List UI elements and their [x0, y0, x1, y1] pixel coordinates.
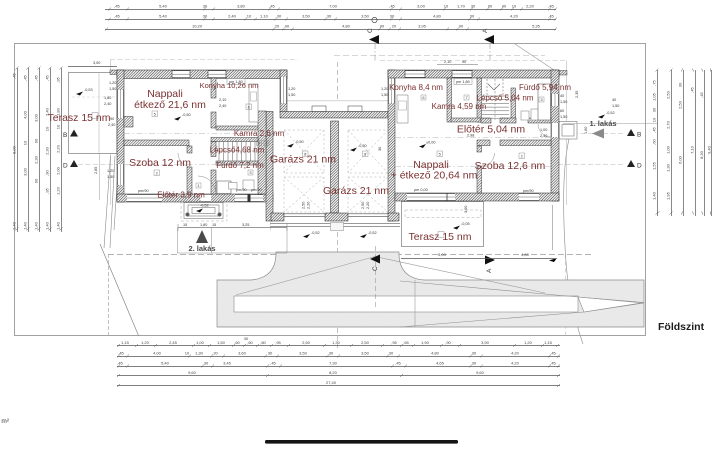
- svg-text:,60: ,60: [234, 340, 240, 345]
- svg-text:10,20: 10,20: [192, 24, 203, 29]
- svg-text:10: 10: [652, 117, 657, 122]
- svg-text:4,20: 4,20: [511, 361, 520, 366]
- svg-text:1,15: 1,15: [544, 340, 553, 345]
- svg-text:27,40: 27,40: [326, 380, 337, 385]
- svg-text:étkező 21,6 nm: étkező 21,6 nm: [134, 99, 206, 111]
- svg-text:2,20: 2,20: [526, 4, 535, 9]
- svg-text:4,00: 4,00: [23, 110, 28, 119]
- svg-text:30: 30: [471, 4, 476, 9]
- svg-text:4,65: 4,65: [436, 361, 445, 366]
- svg-text:,95: ,95: [45, 187, 50, 193]
- svg-text:-0,50: -0,50: [295, 140, 304, 144]
- svg-text:15: 15: [212, 223, 216, 227]
- svg-text:90: 90: [462, 60, 466, 64]
- svg-text:1. lakás: 1. lakás: [589, 119, 616, 128]
- svg-text:,45: ,45: [548, 4, 554, 9]
- svg-text:1,60: 1,60: [584, 127, 588, 134]
- svg-text:20: 20: [275, 24, 280, 29]
- svg-text:60: 60: [560, 109, 564, 113]
- svg-text:1,30: 1,30: [195, 351, 204, 356]
- svg-text:90: 90: [285, 24, 290, 29]
- svg-text:pm 1,80: pm 1,80: [229, 80, 243, 84]
- svg-text:30: 30: [389, 351, 394, 356]
- svg-text:2,40: 2,40: [228, 14, 237, 19]
- svg-text:2,50: 2,50: [678, 100, 683, 109]
- svg-text:,45: ,45: [12, 72, 17, 78]
- svg-text:6,00: 6,00: [678, 155, 683, 164]
- svg-text:+ étkező 20,64 nm: + étkező 20,64 nm: [391, 170, 478, 182]
- svg-text:90: 90: [459, 24, 464, 29]
- svg-text:40: 40: [612, 98, 616, 102]
- svg-text:,60: ,60: [247, 340, 253, 345]
- svg-text:,95: ,95: [56, 76, 61, 82]
- svg-text:,45: ,45: [118, 351, 124, 356]
- svg-text:3,50: 3,50: [302, 14, 311, 19]
- svg-text:C: C: [367, 28, 374, 33]
- svg-text:2,40: 2,40: [45, 107, 50, 116]
- svg-text:4 m²: 4 m²: [0, 418, 10, 425]
- svg-text:1,50: 1,50: [107, 175, 114, 179]
- svg-text:1,30: 1,30: [332, 340, 341, 345]
- svg-text:-0,53: -0,53: [84, 88, 93, 92]
- svg-text:C: C: [372, 266, 379, 271]
- svg-text:30: 30: [329, 351, 334, 356]
- svg-text:2,10: 2,10: [219, 98, 226, 102]
- svg-text:2,30: 2,30: [45, 146, 50, 155]
- svg-text:30: 30: [268, 351, 273, 356]
- svg-text:Fürdő 7,2 nm: Fürdő 7,2 nm: [216, 161, 264, 170]
- svg-text:pm/90: pm/90: [138, 189, 149, 193]
- svg-text:pm/90: pm/90: [236, 188, 247, 192]
- svg-text:10: 10: [185, 351, 190, 356]
- svg-text:2,20: 2,20: [56, 144, 61, 153]
- svg-text:±0,00: ±0,00: [426, 141, 435, 145]
- svg-text:,45: ,45: [652, 126, 657, 132]
- svg-text:,80: ,80: [260, 340, 266, 345]
- svg-text:5,40: 5,40: [159, 14, 168, 19]
- svg-text:,95: ,95: [391, 340, 397, 345]
- svg-text:4,20: 4,20: [511, 351, 520, 356]
- svg-text:5,40: 5,40: [159, 4, 168, 9]
- svg-text:2,00: 2,00: [56, 166, 61, 175]
- svg-text:4,20: 4,20: [510, 14, 519, 19]
- svg-text:3,45: 3,45: [223, 361, 232, 366]
- svg-text:Fürdő 5,94 nm: Fürdő 5,94 nm: [519, 83, 571, 92]
- svg-text:Szoba 12,6 nm: Szoba 12,6 nm: [475, 160, 546, 172]
- svg-text:Lépcső4,68 nm: Lépcső4,68 nm: [210, 146, 265, 155]
- svg-text:30: 30: [204, 361, 209, 366]
- svg-text:1,20: 1,20: [524, 340, 533, 345]
- svg-text:Terasz 15 nm: Terasz 15 nm: [408, 231, 471, 243]
- svg-text:1,50: 1,50: [109, 87, 116, 91]
- svg-text:,45: ,45: [395, 361, 401, 366]
- svg-text:2,30: 2,30: [34, 155, 39, 164]
- svg-text:30: 30: [652, 107, 657, 112]
- svg-text:Konyha 8,4 nm: Konyha 8,4 nm: [389, 83, 443, 92]
- svg-text:4,80: 4,80: [521, 252, 530, 257]
- svg-text:1,10: 1,10: [260, 14, 269, 19]
- svg-text:1,20: 1,20: [141, 340, 150, 345]
- svg-text:,45: ,45: [389, 4, 395, 9]
- svg-text:1,95: 1,95: [666, 191, 671, 200]
- svg-text:1,40: 1,40: [56, 221, 61, 230]
- svg-text:30: 30: [390, 14, 395, 19]
- svg-text:1,40: 1,40: [23, 221, 28, 230]
- svg-text:8,20: 8,20: [329, 370, 338, 375]
- svg-text:,95: ,95: [275, 340, 281, 345]
- svg-text:3,95: 3,95: [418, 24, 427, 29]
- svg-text:-0,52: -0,52: [368, 231, 377, 235]
- svg-text:Garázs 21 nm: Garázs 21 nm: [323, 185, 389, 197]
- svg-text:,75: ,75: [652, 79, 657, 85]
- svg-text:,90: ,90: [445, 340, 451, 345]
- svg-text:1,90: 1,90: [421, 340, 430, 345]
- svg-text:10: 10: [45, 126, 50, 131]
- svg-text:2,50: 2,50: [302, 340, 311, 345]
- svg-text:,45: ,45: [699, 91, 704, 97]
- svg-text:1,15: 1,15: [121, 340, 130, 345]
- svg-text:1,55: 1,55: [652, 161, 657, 170]
- svg-text:1,30: 1,30: [666, 163, 671, 172]
- svg-text:30: 30: [203, 4, 208, 9]
- svg-text:,45: ,45: [45, 74, 50, 80]
- svg-text:7,30: 7,30: [329, 361, 338, 366]
- svg-text:-0,50: -0,50: [182, 113, 191, 117]
- svg-text:1,70: 1,70: [457, 4, 466, 9]
- svg-text:4,80: 4,80: [431, 351, 440, 356]
- svg-text:2,85: 2,85: [94, 167, 98, 174]
- svg-text:Földszint: Földszint: [658, 321, 705, 333]
- svg-text:4,80: 4,80: [342, 24, 351, 29]
- svg-text:30: 30: [472, 361, 477, 366]
- svg-text:pm/90: pm/90: [523, 189, 534, 193]
- svg-text:,45: ,45: [23, 74, 28, 80]
- svg-text:,45: ,45: [269, 4, 275, 9]
- svg-text:,45: ,45: [548, 14, 554, 19]
- svg-text:2,40: 2,40: [108, 123, 115, 127]
- svg-text:pm/90: pm/90: [251, 188, 262, 192]
- svg-text:2,40: 2,40: [219, 104, 226, 108]
- svg-text:1,20: 1,20: [56, 186, 61, 195]
- svg-text:9,40: 9,40: [707, 145, 712, 154]
- svg-text:3,00: 3,00: [23, 167, 28, 176]
- svg-text:1,50: 1,50: [381, 93, 388, 97]
- svg-text:1,20: 1,20: [288, 87, 295, 91]
- svg-text:,90: ,90: [45, 169, 50, 175]
- svg-text:30: 30: [678, 82, 683, 87]
- svg-text:A: A: [482, 28, 489, 33]
- svg-text:1,00: 1,00: [540, 128, 547, 132]
- svg-text:30: 30: [277, 14, 282, 19]
- svg-text:20: 20: [392, 24, 397, 29]
- svg-text:3,60: 3,60: [238, 351, 247, 356]
- svg-text:4,80: 4,80: [433, 14, 442, 19]
- svg-text:,45: ,45: [114, 14, 120, 19]
- svg-text:30: 30: [472, 351, 477, 356]
- svg-text:A: A: [486, 268, 493, 273]
- svg-text:2,50: 2,50: [361, 340, 370, 345]
- svg-text:1,40: 1,40: [45, 221, 50, 230]
- svg-text:3,25: 3,25: [242, 223, 249, 227]
- svg-text:30: 30: [203, 14, 208, 19]
- svg-text:B: B: [637, 132, 641, 139]
- svg-text:4,00: 4,00: [153, 351, 162, 356]
- svg-text:3,90: 3,90: [481, 340, 490, 345]
- svg-text:Előtér 5,04 nm: Előtér 5,04 nm: [457, 124, 526, 136]
- svg-text:7,10: 7,10: [690, 145, 695, 154]
- svg-text:3,50: 3,50: [361, 351, 370, 356]
- svg-text:1,80: 1,80: [104, 96, 111, 100]
- svg-text:3,50: 3,50: [299, 351, 308, 356]
- svg-text:1,50: 1,50: [560, 100, 567, 104]
- svg-text:8,30: 8,30: [699, 150, 704, 159]
- svg-text:1,50: 1,50: [560, 115, 567, 119]
- svg-text:,20: ,20: [212, 351, 218, 356]
- svg-text:pm 1,80: pm 1,80: [456, 80, 470, 84]
- svg-text:1,20: 1,20: [107, 169, 114, 173]
- svg-text:2. lakás: 2. lakás: [188, 244, 215, 253]
- svg-text:pm 0,00: pm 0,00: [414, 188, 428, 192]
- svg-text:-0,52: -0,52: [311, 231, 320, 235]
- svg-text:9,60: 9,60: [476, 370, 485, 375]
- svg-text:3,00: 3,00: [417, 4, 426, 9]
- svg-text:10: 10: [23, 140, 28, 145]
- svg-text:2,10: 2,10: [444, 60, 451, 64]
- svg-text:30: 30: [378, 147, 382, 151]
- svg-text:5,35: 5,35: [532, 24, 541, 29]
- svg-text:3,00: 3,00: [464, 206, 468, 213]
- svg-text:90: 90: [110, 117, 114, 121]
- svg-text:1,80: 1,80: [56, 107, 61, 116]
- svg-text:,60: ,60: [652, 138, 657, 144]
- svg-text:2,40: 2,40: [104, 102, 111, 106]
- svg-text:40: 40: [560, 94, 564, 98]
- svg-text:2,35: 2,35: [575, 91, 579, 98]
- svg-text:2,50: 2,50: [666, 90, 671, 99]
- svg-text:7,00: 7,00: [329, 4, 338, 9]
- svg-text:15: 15: [183, 223, 187, 227]
- svg-text:,45: ,45: [117, 361, 123, 366]
- svg-text:-0,50: -0,50: [358, 144, 367, 148]
- svg-text:,65: ,65: [403, 340, 409, 345]
- svg-text:,45: ,45: [270, 361, 276, 366]
- svg-text:1,00: 1,00: [196, 340, 205, 345]
- svg-text:1,00: 1,00: [666, 145, 671, 154]
- svg-text:2,50: 2,50: [361, 202, 365, 209]
- svg-text:10: 10: [512, 4, 517, 9]
- svg-text:8,00: 8,00: [12, 145, 17, 154]
- svg-text:,45: ,45: [34, 74, 39, 80]
- svg-text:2,20: 2,20: [307, 202, 311, 209]
- svg-text:2,45: 2,45: [169, 340, 178, 345]
- svg-text:9,60: 9,60: [188, 370, 197, 375]
- svg-text:2,40: 2,40: [540, 134, 547, 138]
- svg-text:,45: ,45: [690, 86, 695, 92]
- svg-text:30: 30: [327, 14, 332, 19]
- svg-text:D: D: [637, 163, 642, 170]
- svg-text:-0,52: -0,52: [606, 111, 615, 115]
- svg-text:1,40: 1,40: [12, 221, 17, 230]
- svg-text:3,00: 3,00: [93, 61, 100, 65]
- svg-text:,45: ,45: [550, 351, 556, 356]
- svg-text:5,00: 5,00: [438, 252, 447, 257]
- svg-text:10: 10: [444, 4, 449, 9]
- svg-text:2,20: 2,20: [366, 202, 370, 209]
- svg-text:Szoba 12 nm: Szoba 12 nm: [129, 157, 191, 169]
- svg-text:90: 90: [34, 178, 39, 183]
- svg-text:10: 10: [56, 124, 61, 129]
- svg-text:1,50: 1,50: [288, 93, 295, 97]
- svg-text:5,40: 5,40: [161, 361, 170, 366]
- svg-text:1,50: 1,50: [612, 104, 619, 108]
- svg-text:Kamra 2,6 nm: Kamra 2,6 nm: [234, 129, 285, 138]
- svg-text:1,20: 1,20: [381, 87, 388, 91]
- svg-text:10: 10: [247, 14, 252, 19]
- svg-text:2,70: 2,70: [666, 120, 671, 129]
- svg-text:1,50: 1,50: [217, 340, 226, 345]
- svg-text:Lépcső 5,04 nm: Lépcső 5,04 nm: [477, 94, 534, 103]
- svg-text:90: 90: [34, 138, 39, 143]
- svg-text:-0,05: -0,05: [461, 222, 470, 226]
- svg-text:3,80: 3,80: [237, 4, 246, 9]
- svg-text:1,40: 1,40: [652, 191, 657, 200]
- svg-text:3,00: 3,00: [34, 113, 39, 122]
- svg-text:1,40: 1,40: [34, 221, 39, 230]
- svg-text:1,20: 1,20: [109, 81, 116, 85]
- svg-text:,45: ,45: [114, 4, 120, 9]
- svg-text:1,80: 1,80: [200, 223, 207, 227]
- svg-text:B: B: [63, 132, 67, 139]
- svg-text:1,05: 1,05: [652, 92, 657, 101]
- svg-text:-0,52: -0,52: [200, 204, 209, 208]
- svg-text:3,50: 3,50: [361, 14, 370, 19]
- svg-text:2,50: 2,50: [302, 202, 306, 209]
- svg-text:,45: ,45: [550, 361, 556, 366]
- svg-text:D: D: [63, 163, 68, 170]
- svg-text:Előtér 3,9 nm: Előtér 3,9 nm: [157, 191, 205, 200]
- svg-text:Kamra 4,59 nm: Kamra 4,59 nm: [432, 102, 487, 111]
